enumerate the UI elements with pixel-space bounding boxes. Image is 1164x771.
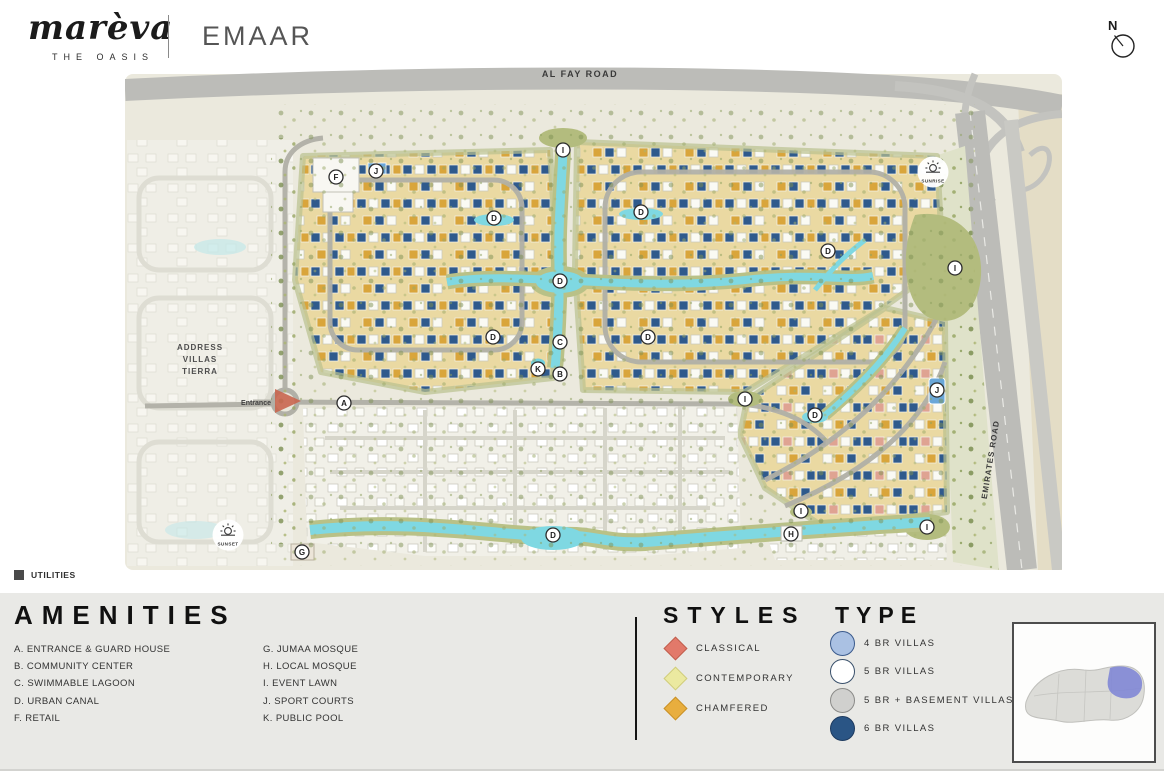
- svg-text:I: I: [926, 523, 928, 532]
- map-marker-d: D: [486, 330, 500, 344]
- map-marker-d: D: [546, 528, 560, 542]
- amenity-item: F. RETAIL: [14, 710, 170, 727]
- svg-text:A: A: [341, 399, 347, 408]
- type-dot-icon: [830, 688, 855, 713]
- amenity-item: K. PUBLIC POOL: [263, 710, 358, 727]
- minimap: [1012, 622, 1156, 763]
- map-marker-d: D: [487, 211, 501, 225]
- svg-text:D: D: [490, 333, 496, 342]
- map-marker-i: I: [794, 504, 808, 518]
- svg-text:G: G: [299, 548, 305, 557]
- brand-divider: [168, 15, 169, 58]
- sunrise-label: SUNRISE: [921, 179, 944, 184]
- map-marker-d: D: [553, 274, 567, 288]
- svg-text:D: D: [491, 214, 497, 223]
- amenity-item: C. SWIMMABLE LAGOON: [14, 675, 170, 692]
- type-item: 6 BR VILLAS: [830, 715, 1014, 744]
- svg-text:I: I: [954, 264, 956, 273]
- map-marker-a: A: [337, 396, 351, 410]
- masterplan-map: AL FAY ROAD EMIRATES ROAD ADDRESS VILLAS…: [125, 60, 1062, 570]
- partner-logo: EMAAR: [202, 21, 313, 52]
- amenities-column-1: A. ENTRANCE & GUARD HOUSEB. COMMUNITY CE…: [14, 641, 170, 727]
- svg-text:K: K: [535, 365, 541, 374]
- svg-text:J: J: [374, 167, 378, 176]
- type-dot-icon: [830, 659, 855, 684]
- map-marker-k: K: [531, 362, 545, 376]
- amenity-item: D. URBAN CANAL: [14, 693, 170, 710]
- compass-dial: [1098, 16, 1144, 62]
- map-marker-j: J: [930, 383, 944, 397]
- map-marker-i: I: [738, 392, 752, 406]
- masterplan-page: marèva THE OASIS EMAAR N: [0, 0, 1164, 771]
- utilities-key: UTILITIES: [14, 570, 76, 580]
- map-marker-i: I: [920, 520, 934, 534]
- svg-text:D: D: [557, 277, 563, 286]
- style-label: CONTEMPORARY: [696, 673, 794, 684]
- style-diamond-icon: [663, 666, 687, 690]
- styles-list: CLASSICALCONTEMPORARYCHAMFERED: [662, 633, 794, 723]
- svg-text:D: D: [825, 247, 831, 256]
- amenities-column-2: G. JUMAA MOSQUEH. LOCAL MOSQUEI. EVENT L…: [263, 641, 358, 727]
- brand-logo: marèva: [28, 8, 173, 48]
- sunset-badge: SUNSET: [213, 520, 244, 551]
- map-marker-i: I: [556, 143, 570, 157]
- amenity-item: I. EVENT LAWN: [263, 675, 358, 692]
- map-marker-c: C: [553, 335, 567, 349]
- type-label: 4 BR VILLAS: [864, 638, 935, 649]
- type-label: 5 BR + BASEMENT VILLAS: [864, 695, 1014, 706]
- neighbor-district-address-villas: [127, 140, 293, 566]
- svg-text:I: I: [744, 395, 746, 404]
- map-marker-g: G: [295, 545, 309, 559]
- style-diamond-icon: [663, 696, 687, 720]
- svg-text:TIERRA: TIERRA: [182, 367, 218, 376]
- map-marker-d: D: [808, 408, 822, 422]
- utilities-label: UTILITIES: [31, 570, 76, 580]
- compass-icon: N: [1098, 16, 1144, 62]
- svg-text:H: H: [788, 530, 794, 539]
- type-dot-icon: [830, 716, 855, 741]
- svg-text:D: D: [638, 208, 644, 217]
- utilities-swatch: [14, 570, 24, 580]
- map-marker-i: I: [948, 261, 962, 275]
- sunset-label: SUNSET: [217, 542, 238, 547]
- style-item: CLASSICAL: [662, 633, 794, 663]
- entrance-label: Entrance: [241, 400, 271, 407]
- type-label: 6 BR VILLAS: [864, 723, 935, 734]
- style-label: CHAMFERED: [696, 703, 769, 714]
- styles-title: STYLES: [663, 602, 806, 629]
- type-item: 5 BR + BASEMENT VILLAS: [830, 686, 1014, 715]
- svg-text:B: B: [557, 370, 563, 379]
- svg-text:F: F: [334, 173, 339, 182]
- amenities-title: AMENITIES: [14, 600, 237, 631]
- amenity-item: J. SPORT COURTS: [263, 693, 358, 710]
- amenity-item: B. COMMUNITY CENTER: [14, 658, 170, 675]
- west-greenbelt: [271, 138, 295, 544]
- style-label: CLASSICAL: [696, 643, 761, 654]
- svg-text:D: D: [645, 333, 651, 342]
- amenity-item: G. JUMAA MOSQUE: [263, 641, 358, 658]
- svg-text:D: D: [812, 411, 818, 420]
- legend-divider: [635, 617, 637, 740]
- svg-text:C: C: [557, 338, 563, 347]
- svg-text:ADDRESS: ADDRESS: [177, 343, 223, 352]
- neighbor-label: ADDRESS VILLAS TIERRA: [177, 343, 223, 376]
- style-item: CHAMFERED: [662, 693, 794, 723]
- style-diamond-icon: [663, 636, 687, 660]
- svg-text:J: J: [935, 386, 939, 395]
- map-marker-j: J: [369, 164, 383, 178]
- type-item: 5 BR VILLAS: [830, 658, 1014, 687]
- svg-text:I: I: [562, 146, 564, 155]
- sunrise-badge: SUNRISE: [918, 157, 949, 188]
- map-marker-f: F: [329, 170, 343, 184]
- map-marker-d: D: [641, 330, 655, 344]
- type-label: 5 BR VILLAS: [864, 666, 935, 677]
- type-title: TYPE: [835, 602, 923, 629]
- compass-north-label: N: [1108, 18, 1117, 33]
- types-list: 4 BR VILLAS5 BR VILLAS5 BR + BASEMENT VI…: [830, 629, 1014, 743]
- al-fay-road-label: AL FAY ROAD: [542, 69, 618, 79]
- map-marker-b: B: [553, 367, 567, 381]
- svg-text:VILLAS: VILLAS: [183, 355, 217, 364]
- map-marker-h: H: [784, 527, 798, 541]
- type-item: 4 BR VILLAS: [830, 629, 1014, 658]
- style-item: CONTEMPORARY: [662, 663, 794, 693]
- legend-band: AMENITIES A. ENTRANCE & GUARD HOUSEB. CO…: [0, 593, 1164, 771]
- svg-text:D: D: [550, 531, 556, 540]
- map-marker-d: D: [634, 205, 648, 219]
- type-dot-icon: [830, 631, 855, 656]
- amenity-item: H. LOCAL MOSQUE: [263, 658, 358, 675]
- map-marker-d: D: [821, 244, 835, 258]
- amenity-item: A. ENTRANCE & GUARD HOUSE: [14, 641, 170, 658]
- svg-text:I: I: [800, 507, 802, 516]
